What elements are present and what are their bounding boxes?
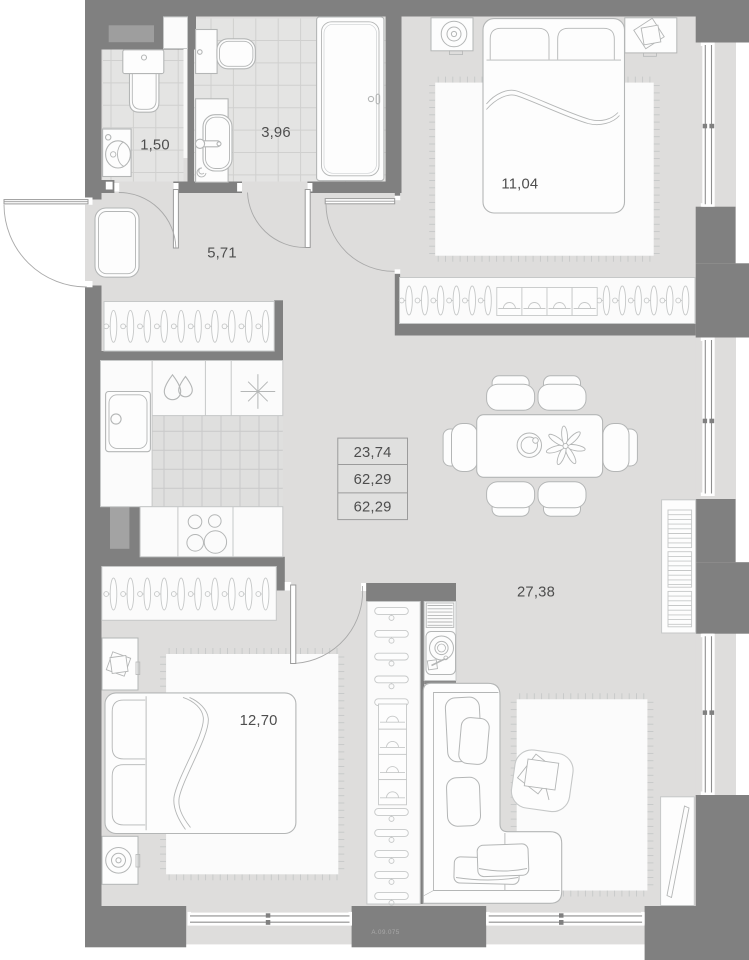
svg-text:А.09.075: А.09.075 (371, 929, 399, 936)
svg-text:12,70: 12,70 (240, 713, 278, 729)
svg-text:62,29: 62,29 (354, 472, 392, 488)
svg-text:62,29: 62,29 (354, 500, 392, 516)
svg-text:27,38: 27,38 (517, 585, 555, 601)
svg-text:1,50: 1,50 (140, 138, 170, 154)
svg-text:5,71: 5,71 (207, 246, 237, 262)
svg-text:23,74: 23,74 (354, 445, 392, 461)
svg-text:3,96: 3,96 (261, 125, 291, 141)
svg-text:11,04: 11,04 (501, 176, 538, 192)
